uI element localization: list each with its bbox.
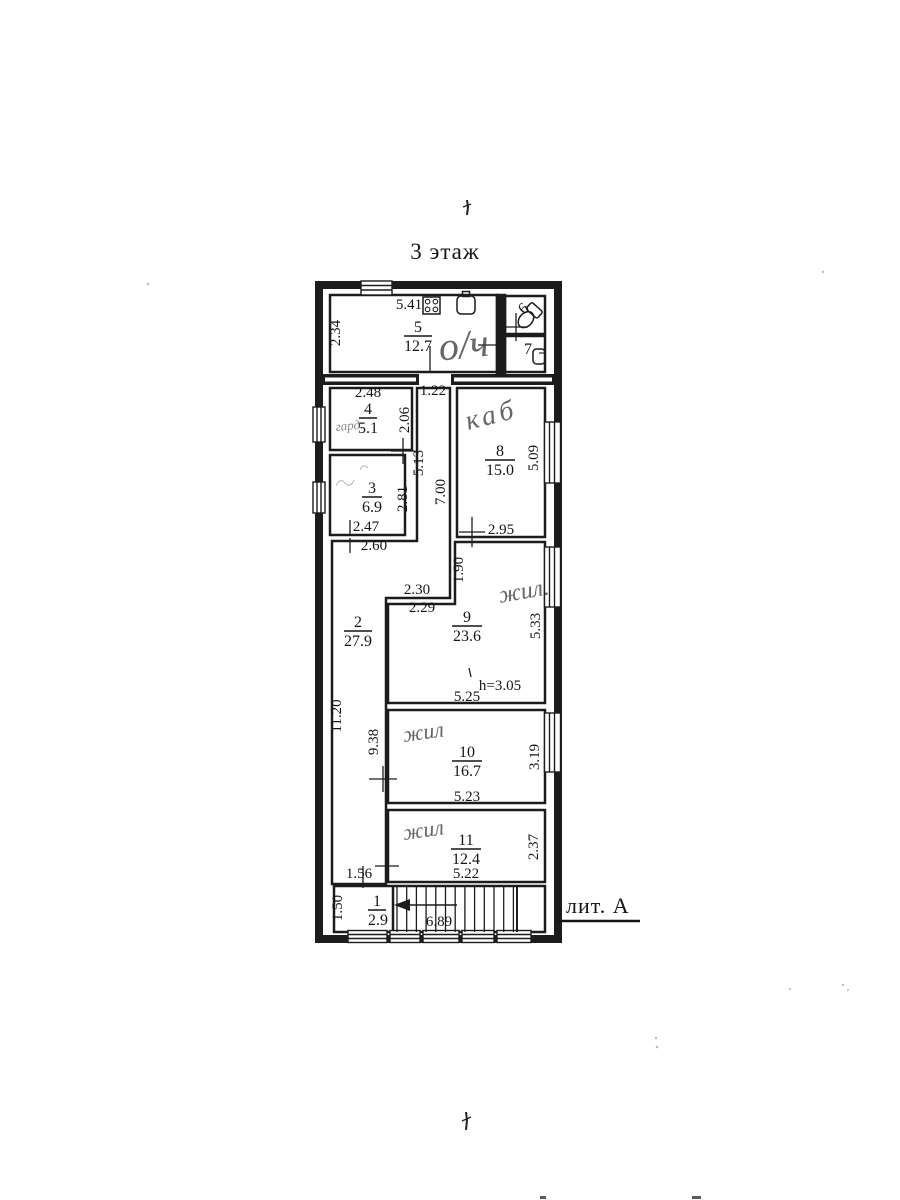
- flue-top: [361, 281, 392, 295]
- cross-room10-door: [369, 766, 397, 792]
- room-8-number: 8: [496, 443, 504, 460]
- room-1-area: 2.9: [368, 912, 388, 929]
- annotation-room-10: жил: [401, 716, 445, 746]
- annotation-room-4: гард.: [335, 417, 364, 434]
- dim-2-37: 2.37: [526, 833, 542, 860]
- dim-2-47: 2.47: [353, 519, 380, 535]
- room-10-area: 16.7: [453, 763, 481, 780]
- dim-5-25: 5.25: [454, 689, 480, 705]
- window-right-3: [545, 713, 561, 772]
- fold-mark-top: [463, 200, 471, 215]
- room-5-number: 5: [414, 319, 422, 336]
- dim-1-22: 1.22: [420, 383, 446, 399]
- room-11-number: 11: [458, 832, 473, 849]
- room-11-label: 11 12.4: [451, 832, 481, 868]
- room-5-area: 12.7: [404, 338, 432, 355]
- washbasin-icon: [533, 349, 545, 364]
- room-6-number: 6: [515, 300, 533, 318]
- dim-5-41: 5.41: [396, 297, 422, 313]
- floor-title: 3 этаж: [410, 239, 480, 264]
- dim-5-13: 5.13: [411, 450, 427, 476]
- room-9-label: 9 23.6: [452, 609, 482, 645]
- room-3-area: 6.9: [362, 499, 382, 516]
- room-10-number: 10: [459, 744, 475, 761]
- room-2-number: 2: [354, 614, 362, 631]
- room-3-number: 3: [368, 480, 376, 497]
- dim-7-00: 7.00: [433, 479, 449, 505]
- room-9-area: 23.6: [453, 628, 481, 645]
- window-left-2: [313, 482, 325, 513]
- fold-mark-bottom: [462, 1112, 471, 1130]
- dim-1-50: 1.50: [330, 895, 346, 921]
- dim-2-48: 2.48: [355, 385, 381, 401]
- dim-11-20: 11.20: [329, 699, 345, 732]
- room-3-label: 3 6.9: [362, 480, 382, 516]
- window-right-1: [545, 422, 561, 483]
- dim-2-30: 2.30: [404, 582, 430, 598]
- dim-2-95: 2.95: [488, 522, 514, 538]
- height-note-tick: [469, 668, 471, 677]
- dim-2-60: 2.60: [361, 538, 387, 554]
- dim-2-06: 2.06: [397, 406, 413, 433]
- room-9-number: 9: [463, 609, 471, 626]
- room-11-area: 12.4: [452, 851, 480, 868]
- room-1-label: 1 2.9: [368, 893, 388, 929]
- windows-bottom: [348, 931, 531, 943]
- window-left-1: [313, 407, 325, 442]
- dim-1-90: 1.90: [451, 557, 467, 583]
- room-8-label: 8 15.0: [485, 443, 515, 479]
- dim-2-34: 2.34: [328, 319, 344, 346]
- dim-5-23: 5.23: [454, 789, 480, 805]
- staircase: [394, 886, 517, 932]
- dim-2-29: 2.29: [409, 600, 435, 616]
- room-1-number: 1: [373, 893, 381, 910]
- dim-2-81: 2.81: [395, 486, 411, 512]
- dim-3-19: 3.19: [527, 744, 543, 770]
- floor-plan-drawing: 3 этаж: [0, 0, 900, 1200]
- annotation-room-5: о/ч: [436, 320, 491, 370]
- dim-6-89: 6.89: [426, 914, 452, 930]
- room-10-label: 10 16.7: [452, 744, 482, 780]
- scan-edge-marks: [540, 1196, 701, 1199]
- dim-5-22: 5.22: [453, 866, 479, 882]
- room-2-label: 2 27.9: [344, 614, 372, 650]
- height-note: h=3.05: [479, 678, 521, 694]
- room-7-number: 7: [524, 341, 532, 358]
- annotation-room-8: каб: [462, 394, 520, 437]
- dim-1-56: 1.56: [346, 866, 373, 882]
- dim-9-38: 9.38: [366, 729, 382, 755]
- litera-label: лит. А: [566, 893, 630, 918]
- annotation-room-3-scribble: [336, 466, 368, 486]
- stair-treads: [397, 886, 517, 932]
- room-5-label: 5 12.7: [404, 319, 432, 355]
- room-4-number: 4: [364, 401, 372, 418]
- annotation-room-9: жил.: [497, 574, 552, 608]
- cross-room11-door: [375, 853, 399, 879]
- litera-block: лит. А: [557, 893, 640, 921]
- annotation-room-11: жил: [401, 814, 445, 844]
- room-8-area: 15.0: [486, 462, 514, 479]
- dim-5-09: 5.09: [526, 445, 542, 471]
- dim-5-33: 5.33: [528, 613, 544, 639]
- stove-icon: [423, 297, 440, 314]
- room-2-area: 27.9: [344, 633, 372, 650]
- scanned-floor-plan-sheet: 3 этаж: [0, 0, 900, 1200]
